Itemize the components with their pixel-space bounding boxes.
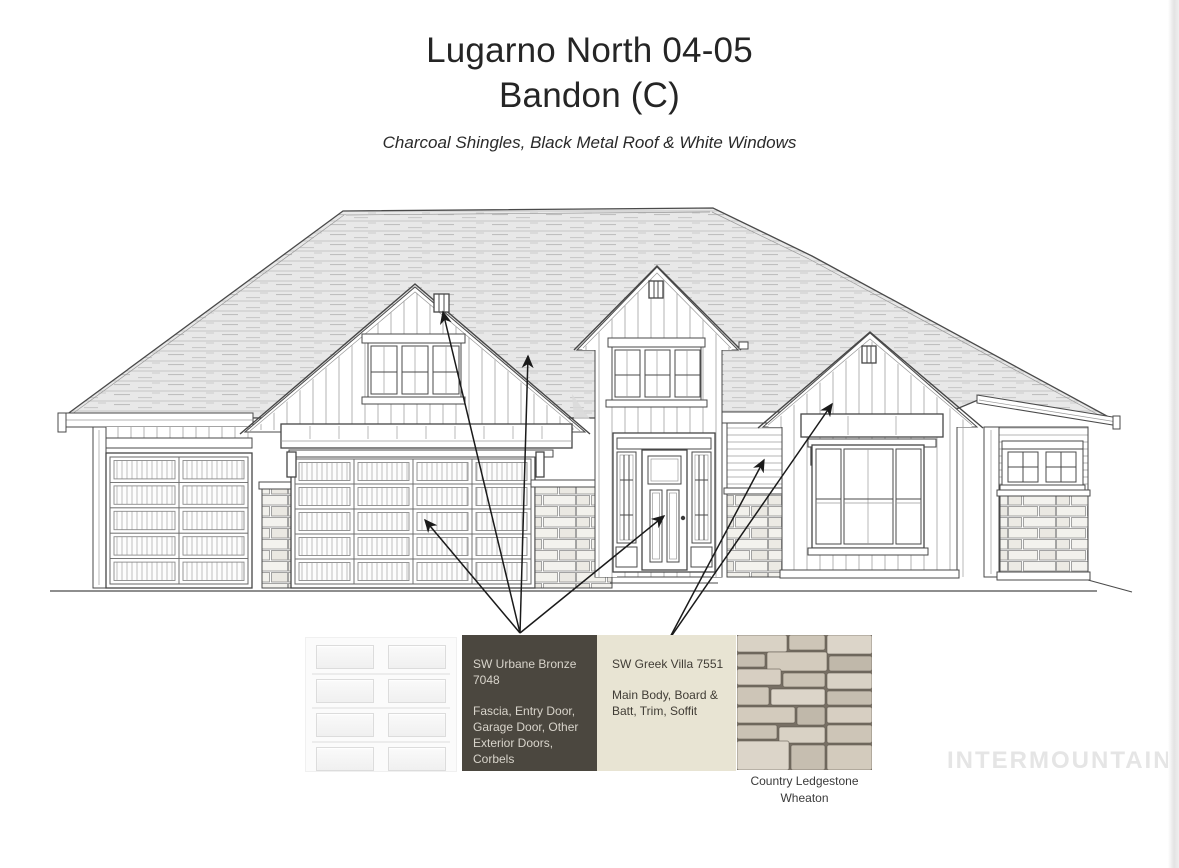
stone-rock: [737, 741, 789, 770]
page-edge-strip: [1168, 0, 1179, 868]
canopy-bracket: [536, 452, 544, 477]
garage-sample-row: [312, 709, 450, 743]
stone-caption: Country Ledgestone Wheaton: [727, 773, 882, 807]
garage-sample-panel: [316, 645, 374, 669]
main-roof: [62, 208, 1116, 421]
garage-sample-panel: [388, 747, 446, 771]
stone-rock: [771, 689, 825, 705]
garage-sample-panel: [316, 679, 374, 703]
window-sill: [362, 397, 465, 404]
board-batten-strip: [95, 427, 250, 438]
stone-rock: [767, 652, 827, 671]
garage-sample-row: [312, 743, 450, 775]
stone-rock: [737, 687, 769, 705]
entry-door-assembly: [610, 433, 718, 583]
stone-rock: [737, 669, 781, 685]
garage-sample-panel: [316, 713, 374, 737]
canopy-bracket: [287, 452, 296, 477]
greek-swatch-uses: Main Body, Board & Batt, Trim, Soffit: [612, 687, 728, 719]
stone-rock: [827, 635, 872, 654]
porch-return: [722, 412, 790, 577]
stone-rock: [827, 673, 872, 689]
watermark: INTERMOUNTAIN: [947, 747, 1179, 775]
garage-header-trim: [93, 438, 252, 448]
fascia-return: [739, 342, 748, 349]
entry-door: [642, 450, 687, 570]
corner-trim: [984, 427, 999, 577]
single-garage-door: [106, 453, 252, 588]
garage-sample-panel: [388, 645, 446, 669]
stone-rock: [797, 707, 825, 725]
urbane-bronze-swatch: SW Urbane Bronze 7048 Fascia, Entry Door…: [462, 635, 597, 771]
stone-sample-image: [737, 635, 872, 770]
garage-sample-panel: [388, 679, 446, 703]
center-gable-window: [362, 334, 465, 404]
greek-villa-swatch: SW Greek Villa 7551 Main Body, Board & B…: [597, 635, 736, 771]
stone-rock: [789, 635, 825, 650]
double-garage-door: [291, 455, 535, 588]
bronze-swatch-uses: Fascia, Entry Door, Garage Door, Other E…: [473, 703, 589, 767]
base-trim: [780, 570, 959, 578]
stone-rock: [737, 654, 765, 667]
right-peak-corbel: [862, 346, 876, 363]
stone-rock: [827, 745, 872, 770]
garage-sample-row: [312, 675, 450, 709]
far-right-section: [977, 395, 1120, 580]
stone-rock: [791, 745, 825, 770]
stone-rock: [783, 673, 825, 687]
gutter-end: [58, 413, 66, 432]
stone-rock: [737, 635, 787, 652]
gable-peak-corbel: [434, 294, 449, 312]
door-knob: [681, 516, 685, 520]
corner-trim: [93, 427, 106, 588]
garage-sample-panel: [316, 747, 374, 771]
gutter-end: [1113, 416, 1120, 429]
bronze-swatch-name: SW Urbane Bronze 7048: [473, 656, 589, 688]
stone-rock: [737, 725, 777, 739]
entry-window: [606, 338, 707, 407]
right-stone-wainscot: [1000, 495, 1088, 574]
stone-rock: [737, 707, 795, 723]
stone-rock: [827, 707, 872, 723]
garage-sample-panel: [388, 713, 446, 737]
porch-stone-wainscot: [727, 494, 786, 577]
greek-swatch-name: SW Greek Villa 7551: [612, 656, 728, 672]
stone-rock: [827, 725, 872, 743]
window-sill: [606, 400, 707, 407]
paired-square-windows: [1000, 441, 1085, 491]
garage-sample-row: [312, 641, 450, 675]
stone-rock: [827, 691, 872, 705]
window-sill: [808, 548, 928, 555]
base-trim: [997, 572, 1090, 580]
entry-peak-corbel: [649, 281, 663, 298]
picture-window: [808, 445, 928, 555]
garage-door-sample-image: [305, 637, 457, 772]
color-scheme-sheet: { "header": { "title_line1": "Lugarno No…: [0, 0, 1179, 868]
stone-rock: [829, 656, 872, 671]
